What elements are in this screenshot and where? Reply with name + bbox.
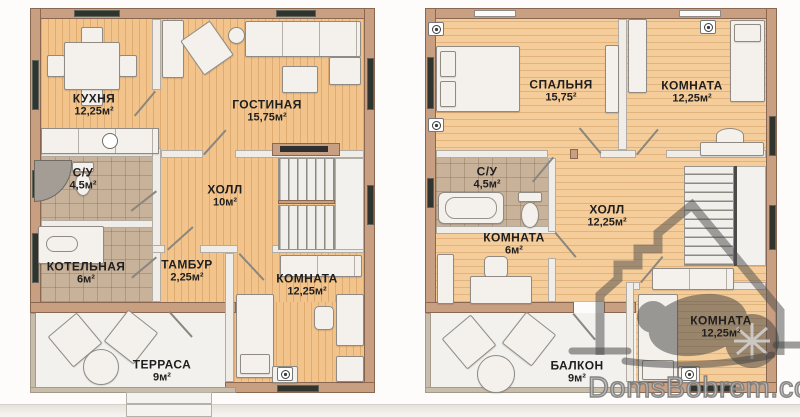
partition [161, 150, 203, 158]
window-icon [367, 58, 374, 110]
chair [119, 55, 137, 77]
partition [152, 245, 165, 253]
desk [700, 142, 764, 156]
chair [47, 55, 65, 77]
floor-plans-image: КУХНЯ12,25м² ГОСТИНАЯ15,75м² С/У4,5м² ХО… [0, 0, 800, 417]
room-label-boiler: КОТЕЛЬНАЯ6м² [47, 259, 126, 286]
window-icon [474, 10, 516, 17]
partition [600, 150, 636, 158]
spotlight-icon [428, 118, 444, 132]
wall [30, 302, 236, 313]
window-icon [427, 57, 434, 109]
room-label-hall: ХОЛЛ12,25м² [587, 202, 626, 229]
terrace-wall [30, 313, 36, 392]
entry-step [126, 404, 212, 417]
stairs [278, 158, 335, 202]
chair [716, 128, 744, 143]
partition [152, 19, 161, 90]
spotlight-icon [700, 20, 716, 34]
spotlight-icon [277, 367, 293, 381]
partition [618, 19, 627, 150]
room-label-room: КОМНАТА6м² [483, 230, 544, 257]
room-label-tambour: ТАМБУР2,25м² [161, 257, 212, 284]
wardrobe [605, 45, 619, 113]
toilet-icon [521, 202, 539, 228]
door-post [570, 149, 578, 159]
partition [152, 148, 161, 302]
cabinet [437, 254, 454, 304]
wardrobe [628, 19, 647, 93]
partition [548, 158, 556, 232]
side-table [228, 27, 245, 44]
toilet-tank [518, 192, 542, 202]
partition [200, 245, 238, 253]
boiler-handle [46, 236, 78, 252]
stair-landing-edge [278, 200, 335, 204]
pillow [734, 24, 761, 42]
kitchen-counter [41, 128, 159, 154]
coffee-table [282, 66, 318, 93]
window-icon [679, 10, 721, 17]
stair-landing [335, 158, 364, 250]
kitchen-table [64, 42, 120, 90]
small-table [336, 356, 364, 382]
chair [314, 306, 334, 330]
room-label-hall: ХОЛЛ10м² [207, 182, 242, 209]
tv-icon [280, 146, 328, 152]
room-label-bath: С/У4,5м² [69, 165, 96, 192]
room-label-terrace: ТЕРРАСА9м² [133, 357, 192, 384]
wardrobe [162, 20, 184, 78]
pillow [440, 81, 456, 107]
sofa-corner [329, 57, 361, 85]
entry-step [126, 392, 212, 404]
sofa [245, 21, 361, 57]
round-table [477, 355, 515, 393]
room-label-bath: С/У4,5м² [473, 164, 500, 191]
sink-icon [102, 133, 118, 149]
window-icon [32, 60, 39, 110]
room-label-balcony: БАЛКОН9м² [550, 358, 603, 385]
window-icon [769, 116, 776, 156]
room-label-room: КОМНАТА12,25м² [276, 271, 337, 298]
stairs [278, 205, 335, 250]
balcony-wall [425, 313, 431, 392]
room-label-living: ГОСТИНАЯ15,75м² [232, 97, 301, 124]
room-label-room: КОМНАТА12,25м² [690, 313, 751, 340]
round-table [83, 349, 119, 385]
pillow [440, 51, 456, 77]
partition [436, 150, 548, 158]
pillow [240, 354, 270, 374]
bathtub-inner [445, 197, 497, 219]
window-icon [367, 185, 374, 225]
desk [336, 294, 364, 346]
wall [425, 8, 436, 313]
room-label-bedroom: СПАЛЬНЯ15,75² [529, 77, 592, 104]
window-icon [276, 10, 316, 17]
ground-shadow-band [0, 404, 800, 417]
watermark-text: DomsBobrem.com [588, 372, 800, 405]
partition [225, 253, 234, 382]
room-label-room: КОМНАТА12,25м² [661, 78, 722, 105]
chair [484, 256, 508, 278]
partition [548, 258, 556, 302]
desk [470, 276, 532, 304]
room-label-kitchen: КУХНЯ12,25м² [73, 91, 115, 118]
window-icon [277, 385, 319, 392]
spotlight-icon [428, 22, 444, 36]
window-icon [427, 178, 434, 208]
window-icon [74, 10, 120, 17]
